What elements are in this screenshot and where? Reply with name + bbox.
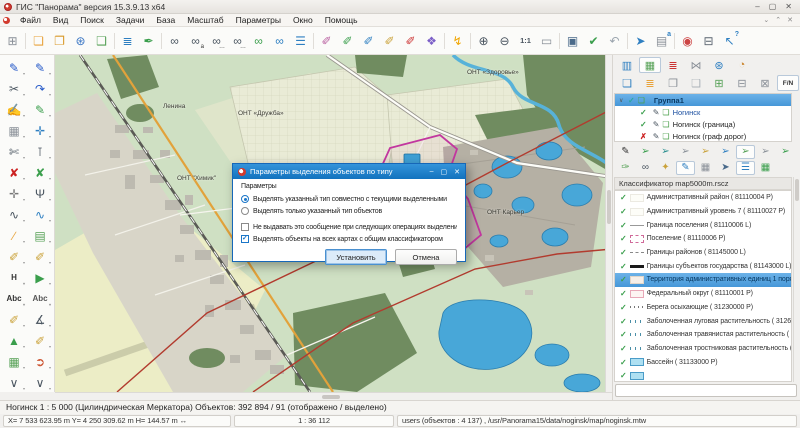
select-add-icon[interactable]: ✐ <box>358 30 379 52</box>
radio-label: Выделять только указанный тип объектов <box>253 208 382 215</box>
edit-apply-icon[interactable]: ✎ <box>27 99 53 120</box>
select-stamp-green2-icon[interactable]: ➢ <box>776 145 795 159</box>
classifier-item[interactable]: ✓ Заболоченная травянистая растительност… <box>615 328 791 342</box>
highlight-grid-icon[interactable]: ✐ <box>27 246 53 267</box>
route-icon[interactable]: ➲ <box>27 351 53 372</box>
symbol-swatch-icon <box>630 290 644 298</box>
radio-icon[interactable] <box>241 195 249 203</box>
classifier-item[interactable]: ✓ Границы субъектов государства ( 811430… <box>615 259 791 273</box>
folder-icon: ❏ <box>638 96 645 105</box>
classifier-item[interactable]: ✓ Федеральный округ ( 81110001 P) <box>615 287 791 301</box>
checkbox-option[interactable]: Выделять объекты на всех картах с общим … <box>241 233 457 245</box>
search-sequential-icon[interactable]: ∞ … <box>206 30 227 52</box>
select-stamp-gray-icon[interactable]: ➢ <box>676 145 695 159</box>
flashlight-icon[interactable]: ✐ <box>1 309 27 330</box>
symbol-swatch-icon <box>630 320 644 323</box>
tab-geoportal[interactable]: ⊛ <box>708 57 730 73</box>
tree-item-label: Ногинск (граница) <box>673 120 736 129</box>
classifier-item-label: Берега осыхающие ( 31230000 P) <box>647 304 753 311</box>
screen-area-icon[interactable]: ▣ <box>562 30 583 52</box>
symbol-swatch-icon <box>630 265 644 268</box>
selection-toolbar: ✎ ➢ ➢ ➢ ➢ ➢ <box>614 144 799 159</box>
stamp-icon[interactable]: ▦ <box>1 120 27 141</box>
status-line: Ногинск 1 : 5 000 (Цилиндрическая Меркат… <box>0 400 800 414</box>
app-logo-icon <box>4 3 12 11</box>
fit-extent-icon[interactable]: ▭ <box>536 30 557 52</box>
select-stamp-yellow-icon[interactable]: ➢ <box>696 145 715 159</box>
text-abc-icon[interactable]: Abc <box>1 288 27 309</box>
object-card-icon[interactable]: ▤ a <box>651 30 672 52</box>
symbol-swatch-icon <box>630 194 644 202</box>
classifier-list: ✓ Административный район ( 81110004 P) ✓… <box>614 190 792 382</box>
table-view-icon[interactable]: ▦ <box>696 161 715 175</box>
classifier-item[interactable]: ✓ Территория административных единиц 1 п… <box>615 273 791 287</box>
select-apply-icon[interactable]: ✐ <box>337 30 358 52</box>
checkbox-label: Не выдавать это сообщение при следующих … <box>253 224 457 231</box>
classifier-search-input[interactable] <box>615 384 797 397</box>
check-icon[interactable]: ✓ <box>620 248 627 257</box>
classifier-header: Классификатор map5000m.rscz <box>614 177 792 190</box>
tree-item-label: Ногинск <box>673 108 701 117</box>
tree-row[interactable]: ∨ ✓ ❏ Группа1 <box>615 94 791 106</box>
list-view-icon[interactable]: ☰ <box>736 161 755 175</box>
check-icon[interactable]: ✓ <box>620 207 627 216</box>
move-object-icon[interactable]: ✛ <box>27 120 53 141</box>
edit-node-icon[interactable]: ✛ <box>1 183 27 204</box>
classifier-item-label: Территория административных единиц 1 пор… <box>647 276 791 283</box>
title-bar: ГИС "Панорама" версия 15.3.9.13 x64 ‒ ▢ … <box>0 0 800 14</box>
panel-tabs: ▥ ▦ ≣ ⋈ ⊛ ◔ <box>614 56 799 74</box>
minimize-button[interactable]: ‒ <box>755 2 759 11</box>
classifier-item-label: Административный уровень 7 ( 81110027 P) <box>647 208 786 215</box>
apply-button[interactable]: Установить <box>325 249 387 265</box>
select-stamp-active-icon[interactable]: ➢ <box>736 145 755 159</box>
select-stamp-teal-icon[interactable]: ➢ <box>656 145 675 159</box>
highlight-a-icon[interactable]: ✐ <box>1 246 27 267</box>
classifier-item[interactable]: ✓ Поселение ( 81110006 P) <box>615 232 791 246</box>
menu-item[interactable]: Файл <box>14 14 47 27</box>
select-by-frame-icon[interactable]: ✐ <box>379 30 400 52</box>
db-import-icon[interactable]: ⊠ <box>754 75 776 91</box>
map-composition-panel: ▥ ▦ ≣ ⋈ ⊛ ◔ <box>612 55 800 400</box>
select-stamp-gray2-icon[interactable]: ➢ <box>756 145 775 159</box>
radio-icon[interactable] <box>241 207 249 215</box>
area-calc-icon[interactable]: ▤ <box>27 225 53 246</box>
menu-item[interactable]: Вид <box>47 14 74 27</box>
panel-toolbar: ❏ ≣ ❐ ❑ ⊞ ⊟ <box>614 74 799 92</box>
map-vertical-scrollbar[interactable] <box>605 55 612 392</box>
apply-check-icon[interactable]: ✔ <box>583 30 604 52</box>
edit-pencil-icon: ✎ <box>653 132 660 141</box>
align-icon[interactable]: ⊺ <box>27 141 53 162</box>
classifier-item[interactable]: ✓ Граница поселения ( 81110006 L) <box>615 218 791 232</box>
maps-tree: ∨ ✓ ❏ Группа1 ✓ ✎ ❏ Ногинск <box>614 93 792 142</box>
select-clear-icon[interactable]: ✐ <box>400 30 421 52</box>
help-pointer-icon[interactable]: ↖ ? <box>719 30 740 52</box>
menu-item[interactable]: База <box>150 14 181 27</box>
edit-curve-icon[interactable]: ↷ <box>27 78 53 99</box>
classifier-item-label: Поселение ( 81110006 P) <box>647 235 726 242</box>
symbol-swatch-icon <box>630 208 644 216</box>
search-on-globe-icon[interactable]: ∞ <box>269 30 290 52</box>
check-icon[interactable]: ✓ <box>620 275 627 284</box>
window-title: ГИС "Панорама" версия 15.3.9.13 x64 <box>16 2 165 12</box>
close-button[interactable]: ✕ <box>785 2 792 11</box>
empty-document-icon[interactable]: ❑ <box>685 75 707 91</box>
tab-data-list[interactable]: ▥ <box>616 57 638 73</box>
classifier-item-label: Границы субъектов государства ( 81143000… <box>647 263 791 270</box>
flashlight-grid2-icon[interactable]: ✐ <box>27 330 53 351</box>
edit-sign-icon[interactable]: ✎ <box>616 145 635 159</box>
grid-view-icon[interactable]: ▦ <box>756 161 775 175</box>
symbol-swatch-icon <box>630 372 644 380</box>
search-list-icon[interactable]: ☰ <box>290 30 311 52</box>
dialog-app-icon <box>238 168 246 176</box>
check-icon[interactable]: ✓ <box>620 234 627 243</box>
expander-icon[interactable]: ∨ <box>619 97 625 104</box>
classifier-item-label: Граница поселения ( 81110006 L) <box>647 222 752 229</box>
add-data-icon[interactable]: ❏ <box>616 75 638 91</box>
select-shapes-icon[interactable]: ❖ <box>421 30 442 52</box>
angle-measure-icon[interactable]: ∡ <box>27 309 53 330</box>
check-icon[interactable]: ✓ <box>620 330 627 339</box>
check-icon[interactable]: ✓ <box>620 344 627 353</box>
check-icon[interactable]: ✓ <box>620 262 627 271</box>
tree-item-label: Ногинск (граф дорог) <box>673 132 747 141</box>
symbol-swatch-icon <box>630 225 644 226</box>
menu-item[interactable]: Задачи <box>110 14 151 27</box>
main-toolbar: ⊞ ❏ ❐ ⊛ <box>0 27 800 55</box>
visibility-mark-icon[interactable]: ✓ <box>640 108 647 117</box>
more-tools-left-icon[interactable]: ∨ <box>1 372 27 393</box>
fn-toggle[interactable]: F/N <box>777 75 799 91</box>
check-icon[interactable]: ✓ <box>620 317 627 326</box>
zoom-out-icon[interactable]: ⊖ <box>494 30 515 52</box>
checkbox-icon[interactable] <box>241 223 249 231</box>
dialog-maximize-button[interactable]: ▢ <box>441 168 448 176</box>
symbol-swatch-icon <box>630 276 644 284</box>
classifier-item[interactable]: ✓ Заболоченная тростниковая растительнос… <box>615 342 791 356</box>
edit-toolbar: ✎ ✎ ✂ ↷ ✍ ✎ ▦ <box>0 55 55 392</box>
check-icon[interactable]: ✓ <box>620 303 627 312</box>
zoom-in-icon[interactable]: ⊕ <box>473 30 494 52</box>
select-pointer-icon[interactable]: ➤ <box>630 30 651 52</box>
visibility-mark-icon[interactable]: ✓ <box>628 96 635 105</box>
classifier-item-label: Заболоченная травянистая растительность … <box>647 331 791 338</box>
tab-map-composition[interactable]: ▦ <box>639 57 661 73</box>
tree-row[interactable]: ✓ ✎ ❏ Ногинск (граница) <box>615 118 791 130</box>
text-abc2-icon[interactable]: Abc <box>27 288 53 309</box>
select-by-type-icon[interactable]: ✐ <box>316 30 337 52</box>
tab-layers[interactable]: ≣ <box>662 57 684 73</box>
menu-item[interactable]: Масштаб <box>181 14 229 27</box>
classifier-item-label: Федеральный округ ( 81110001 P) <box>647 290 753 297</box>
ruler-icon[interactable]: ∕ <box>1 225 27 246</box>
radio-option[interactable]: Выделять указанный тип совместно с текущ… <box>241 193 457 205</box>
map-layer-icon: ❏ <box>662 120 669 129</box>
create-object-icon[interactable]: ✎ <box>1 57 27 78</box>
radio-label: Выделять указанный тип совместно с текущ… <box>253 196 447 203</box>
symbol-swatch-icon <box>630 358 644 366</box>
select-by-type-dialog: Параметры выделения объектов по типу ‒ ▢… <box>232 163 466 262</box>
find-type-icon[interactable]: ∞ <box>636 161 655 175</box>
map-horizontal-scrollbar[interactable] <box>55 392 612 400</box>
search-by-name-icon[interactable]: ∞ a <box>185 30 206 52</box>
check-icon[interactable]: ✓ <box>620 358 627 367</box>
select-stamp-green-icon[interactable]: ➢ <box>636 145 655 159</box>
topology-icon[interactable]: Ψ <box>27 183 53 204</box>
active-map-path: users (объектов : 4 137) , /usr/Panorama… <box>397 415 797 427</box>
classifier-scrollbar[interactable] <box>793 177 800 382</box>
classifier-item-label: Административный район ( 81110004 P) <box>647 194 773 201</box>
classifier-item-label: Границы районов ( 81145000 L) <box>647 249 746 256</box>
mdi-restore-up-button[interactable]: ⌃ <box>775 16 781 24</box>
tree-row[interactable]: ✓ ✎ ❏ Ногинск <box>615 106 791 118</box>
more-tools-right-icon[interactable]: ∨ <box>27 372 53 393</box>
spline-icon[interactable]: ∿ <box>27 204 53 225</box>
mdi-restore-button[interactable]: ⌄ <box>763 16 769 24</box>
classifier-item[interactable]: ✓ Берега осыхающие ( 31230000 P) <box>615 301 791 315</box>
checkbox-icon[interactable] <box>241 235 249 243</box>
map-layers-icon[interactable]: ≣ <box>117 30 138 52</box>
maximize-button[interactable]: ▢ <box>769 2 777 11</box>
cancel-button[interactable]: Отмена <box>395 249 457 265</box>
delete-part-icon[interactable]: ✘ <box>27 162 53 183</box>
menu-item[interactable]: Параметры <box>230 14 287 27</box>
menu-bar: Файл Вид Поиск Задачи База Масштаб Парам… <box>0 14 800 27</box>
run-icon[interactable]: ▶ <box>27 267 53 288</box>
open-internet-map-icon[interactable]: ❑ <box>91 30 112 52</box>
map-horizontal-scrollbar-thumb[interactable] <box>322 395 340 399</box>
scale-1-1-icon[interactable]: 1:1 <box>515 30 536 52</box>
dialog-title-bar[interactable]: Параметры выделения объектов по типу ‒ ▢… <box>233 164 465 179</box>
print-icon[interactable]: ⊟ <box>698 30 719 52</box>
classifier-item[interactable]: ✓ Границы районов ( 81145000 L) <box>615 246 791 260</box>
edit-pencil-icon: ✎ <box>653 108 660 117</box>
visibility-mark-icon[interactable]: ✓ <box>640 120 647 129</box>
tree-item-label: Группа1 <box>654 96 684 105</box>
tin-model-icon[interactable]: ▲ <box>1 330 27 351</box>
dialog-close-button[interactable]: ✕ <box>454 168 460 176</box>
wand-icon[interactable]: ✦ <box>656 161 675 175</box>
edit-object-icon[interactable]: ✎ <box>27 57 53 78</box>
classifier-item[interactable]: ✓ <box>615 369 791 382</box>
classifier-item-label: Заболоченная луговая растительность ( 31… <box>647 318 791 325</box>
dialog-title: Параметры выделения объектов по типу <box>250 167 393 176</box>
add-table-icon[interactable]: ⊞ <box>708 75 730 91</box>
map-vertical-scrollbar-thumb[interactable] <box>607 190 611 224</box>
check-icon[interactable]: ✓ <box>620 221 627 230</box>
view-toolbar: ✑ ∞ ✦ ✎ ▦ ➤ <box>614 159 799 176</box>
cut-object-icon[interactable]: ✂ <box>1 78 27 99</box>
classifier-item[interactable]: ✓ Заболоченная луговая растительность ( … <box>615 314 791 328</box>
search-icon[interactable]: ∞ <box>164 30 185 52</box>
smooth-line-icon[interactable]: ∿ <box>1 204 27 225</box>
open-geoportal-icon[interactable]: ⊛ <box>70 30 91 52</box>
calc-table-icon[interactable]: ▦ <box>1 351 27 372</box>
menu-item[interactable]: Окно <box>287 14 319 27</box>
classifier-item-label: Заболоченная тростниковая растительность… <box>647 345 791 352</box>
symbol-swatch-icon <box>630 252 644 253</box>
dialog-minimize-button[interactable]: ‒ <box>430 168 434 176</box>
db-export-icon[interactable]: ⊟ <box>731 75 753 91</box>
current-scale[interactable]: 1 : 36 112 <box>234 415 394 427</box>
classifier-scrollbar-thumb[interactable] <box>795 179 799 201</box>
symbol-swatch-icon <box>630 333 644 336</box>
symbol-swatch-icon <box>630 347 644 350</box>
classifier-item[interactable]: ✓ Бассейн ( 31133000 P) <box>615 355 791 369</box>
mdi-close-button[interactable]: ✕ <box>787 16 793 24</box>
add-layer-icon[interactable]: ≣ <box>639 75 661 91</box>
pointer-mode-icon[interactable]: ➤ <box>716 161 735 175</box>
palette-icon[interactable]: ◉ <box>677 30 698 52</box>
map-legend-icon[interactable]: ✒ <box>138 30 159 52</box>
check-icon[interactable]: ✓ <box>620 371 627 380</box>
radio-option[interactable]: Выделять только указанный тип объектов <box>241 205 457 217</box>
edit-type-icon[interactable]: ✎ <box>676 161 695 175</box>
height-icon[interactable]: H <box>1 267 27 288</box>
visibility-mark-icon[interactable]: ✗ <box>640 132 647 141</box>
fast-launch-icon[interactable]: ↯ <box>447 30 468 52</box>
status-bar: X= 7 533 623.95 m Y= 4 250 309.62 m H= 1… <box>0 414 800 428</box>
map-layer-icon: ❏ <box>662 108 669 117</box>
application-window: ГИС "Панорама" версия 15.3.9.13 x64 ‒ ▢ … <box>0 0 800 428</box>
brush-icon[interactable]: ✑ <box>616 161 635 175</box>
dialog-group-label: Параметры <box>241 183 457 190</box>
open-database-icon[interactable]: ❐ <box>49 30 70 52</box>
new-document-icon[interactable]: ❐ <box>662 75 684 91</box>
search-repeat-icon[interactable]: ∞ … <box>227 30 248 52</box>
new-map-icon[interactable]: ⊞ <box>2 30 23 52</box>
select-stamp-blue-icon[interactable]: ➢ <box>716 145 735 159</box>
check-icon[interactable]: ✓ <box>620 289 627 298</box>
split-icon[interactable]: ✄ <box>1 141 27 162</box>
document-icon <box>3 17 10 24</box>
edit-query-icon[interactable]: ✍ <box>1 99 27 120</box>
tab-routes[interactable]: ⋈ <box>685 57 707 73</box>
menu-item[interactable]: Поиск <box>74 14 110 27</box>
undo-selection-icon[interactable]: ↶ <box>604 30 625 52</box>
classifier-item[interactable]: ✓ Административный район ( 81110004 P) <box>615 191 791 205</box>
coordinates-readout: X= 7 533 623.95 m Y= 4 250 309.62 m H= 1… <box>3 415 231 427</box>
symbol-swatch-icon <box>630 306 644 308</box>
check-icon[interactable]: ✓ <box>620 193 627 202</box>
checkbox-label: Выделять объекты на всех картах с общим … <box>253 236 443 243</box>
classifier-item-label: Бассейн ( 31133000 P) <box>647 359 718 366</box>
map-layer-icon: ❏ <box>662 132 669 141</box>
delete-object-icon[interactable]: ✘ <box>1 162 27 183</box>
menu-item[interactable]: Помощь <box>319 14 364 27</box>
symbol-swatch-icon <box>630 235 644 243</box>
tab-thematic[interactable]: ◔ <box>731 57 753 73</box>
classifier-item[interactable]: ✓ Административный уровень 7 ( 81110027 … <box>615 205 791 219</box>
search-in-area-icon[interactable]: ∞ <box>248 30 269 52</box>
tree-row[interactable]: ✗ ✎ ❏ Ногинск (граф дорог) <box>615 130 791 142</box>
checkbox-option[interactable]: Не выдавать это сообщение при следующих … <box>241 221 457 233</box>
edit-pencil-icon: ✎ <box>653 120 660 129</box>
open-map-icon[interactable]: ❏ <box>28 30 49 52</box>
